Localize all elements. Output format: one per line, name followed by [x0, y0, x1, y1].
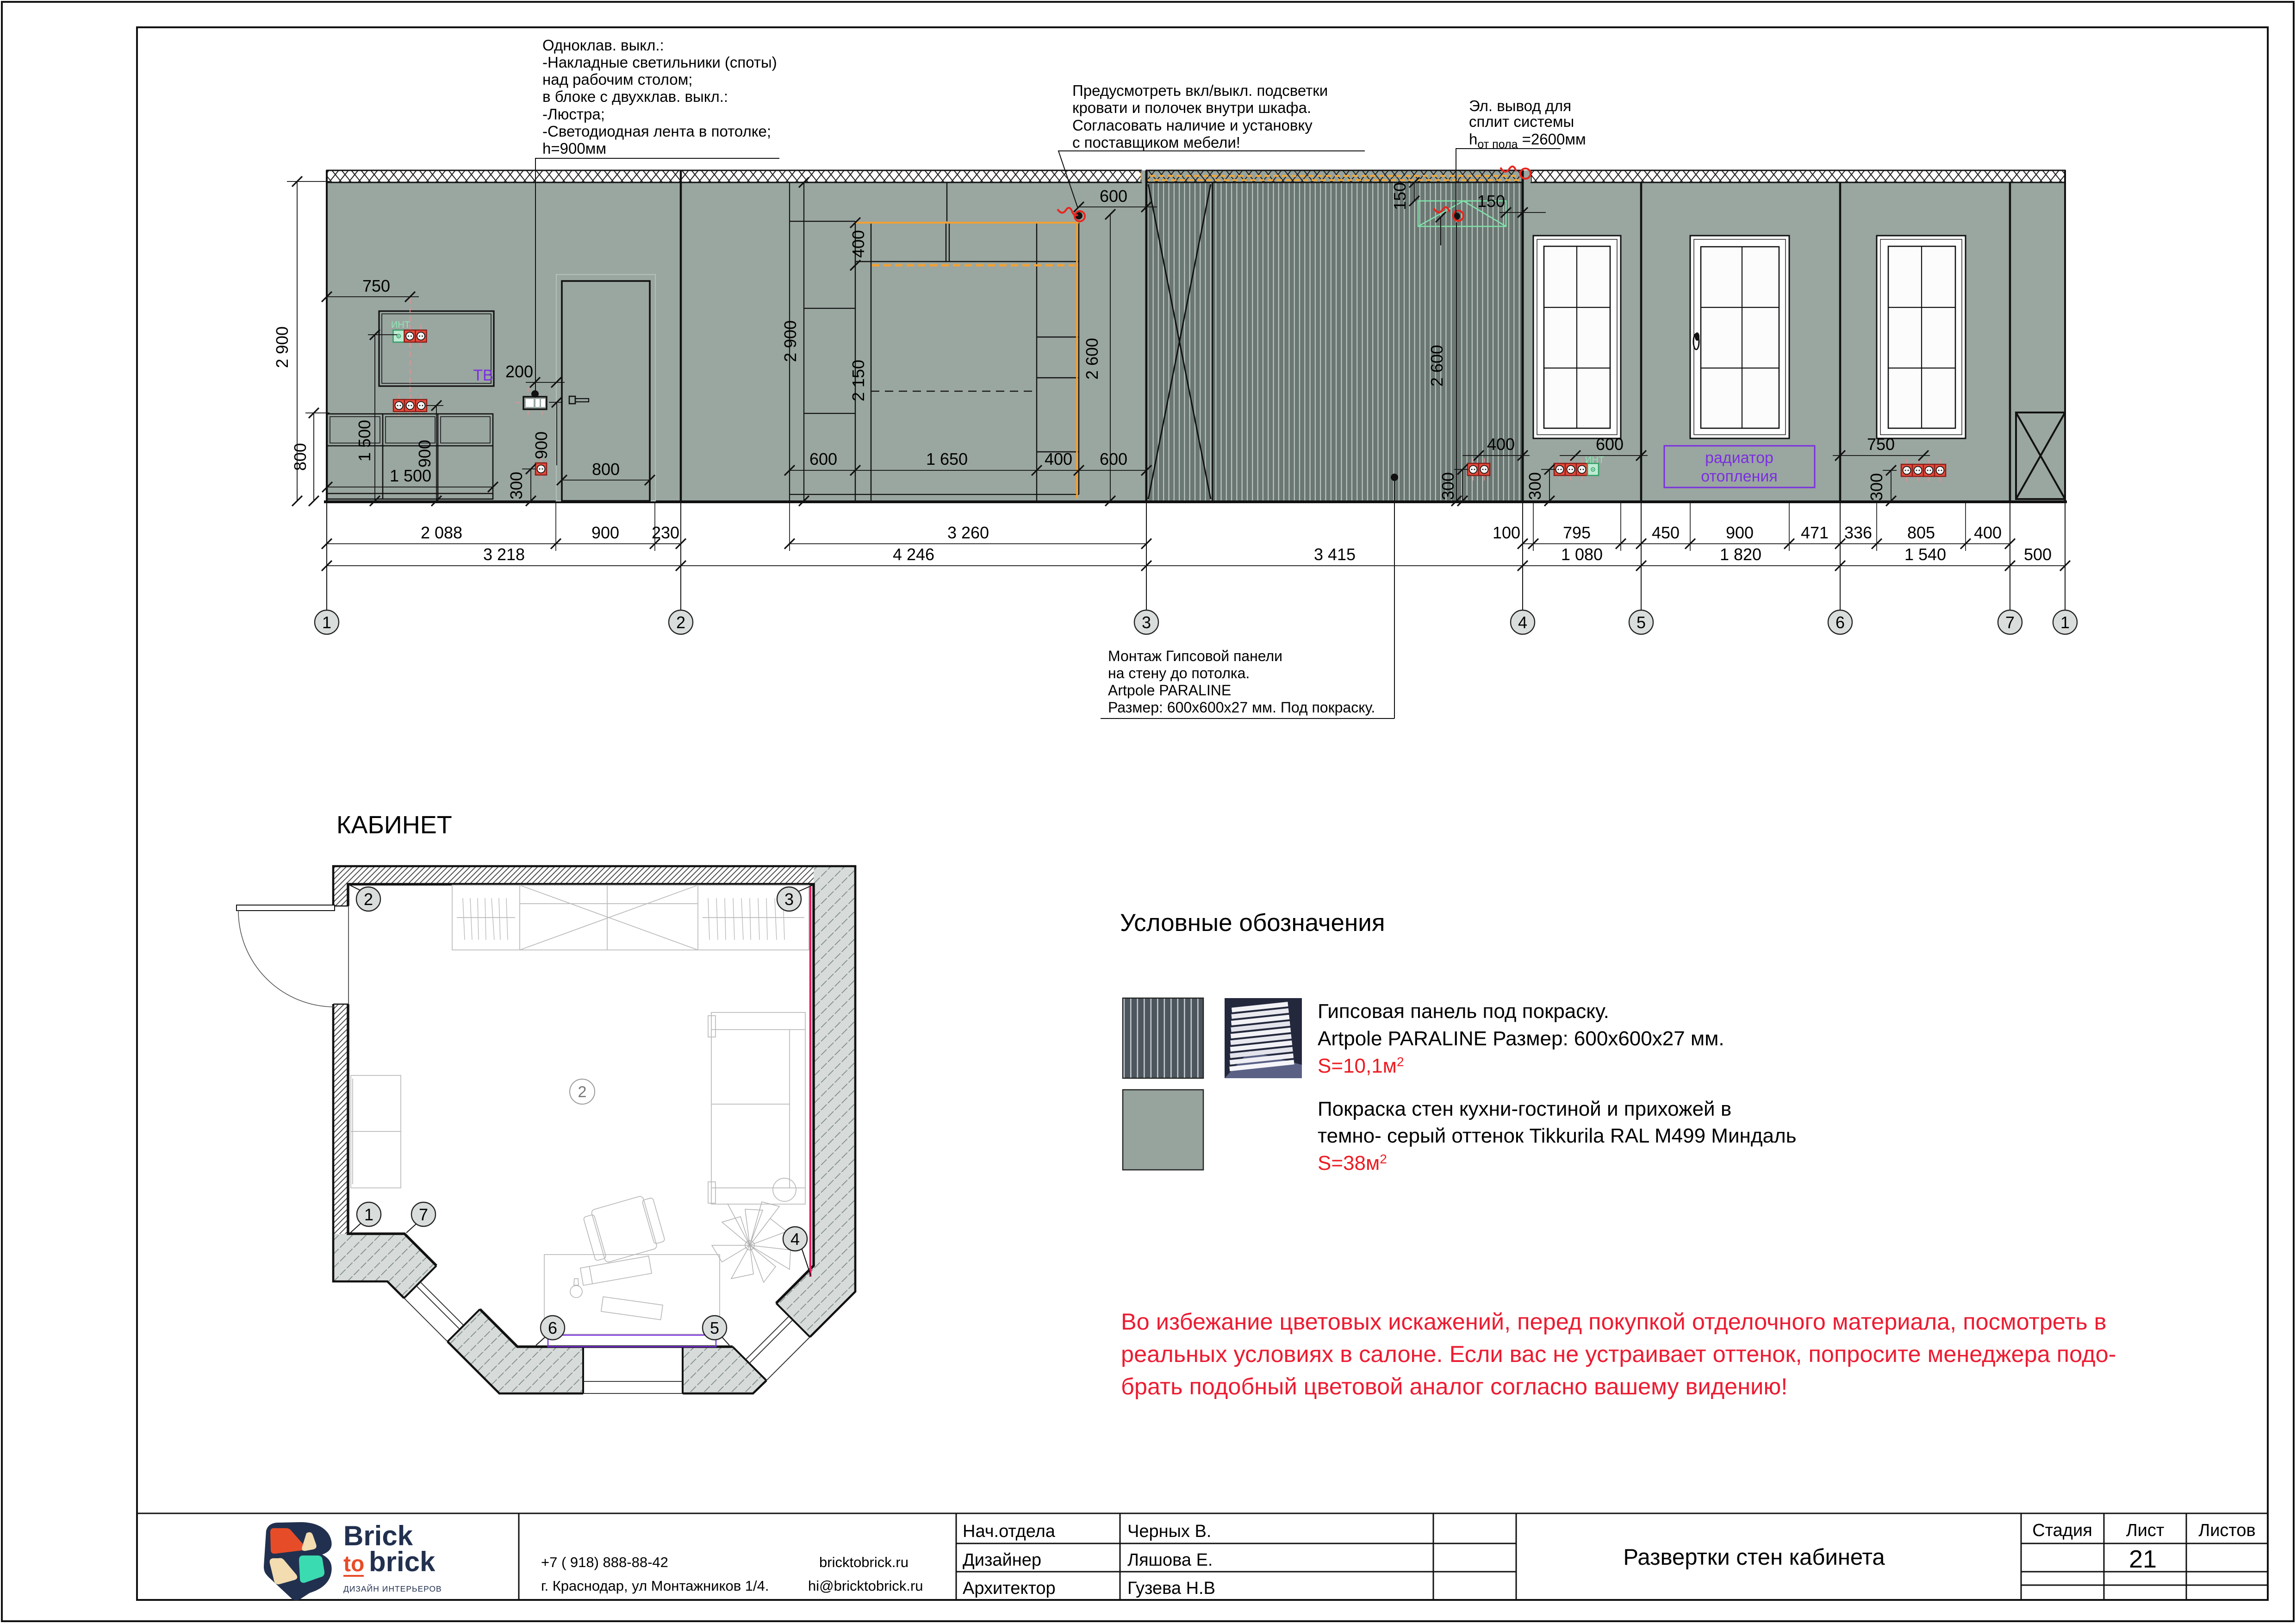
svg-text:6: 6	[548, 1318, 557, 1337]
svg-text:2: 2	[578, 1083, 587, 1101]
svg-text:400: 400	[1974, 523, 2002, 542]
svg-text:2 150: 2 150	[849, 360, 868, 401]
svg-text:336: 336	[1844, 523, 1872, 542]
svg-text:200: 200	[505, 362, 533, 381]
svg-text:3: 3	[784, 890, 794, 909]
svg-text:400: 400	[1045, 450, 1072, 468]
svg-text:3 415: 3 415	[1314, 545, 1356, 564]
svg-text:600: 600	[1100, 450, 1127, 468]
svg-text:Стадия: Стадия	[2032, 1521, 2092, 1540]
svg-text:4 246: 4 246	[893, 545, 934, 564]
svg-text:3 218: 3 218	[483, 545, 525, 564]
svg-text:1: 1	[2060, 613, 2070, 632]
svg-text:сплит системы: сплит системы	[1469, 113, 1574, 130]
svg-text:1: 1	[364, 1205, 373, 1224]
svg-text:на стену до потолка.: на стену до потолка.	[1108, 665, 1250, 681]
svg-text:ДИЗАЙН ИНТЕРЬЕРОВ: ДИЗАЙН ИНТЕРЬЕРОВ	[343, 1584, 442, 1593]
svg-text:150: 150	[1477, 192, 1505, 211]
svg-text:300: 300	[507, 472, 526, 500]
svg-text:-Люстра;: -Люстра;	[542, 106, 605, 123]
svg-text:800: 800	[592, 460, 620, 479]
svg-text:800: 800	[291, 443, 310, 471]
svg-text:2 088: 2 088	[421, 523, 462, 542]
svg-text:Условные обозначения: Условные обозначения	[1120, 909, 1385, 937]
svg-text:Нач.отдела: Нач.отдела	[963, 1522, 1056, 1541]
svg-text:400: 400	[1487, 435, 1515, 454]
svg-text:21: 21	[2129, 1545, 2157, 1573]
svg-text:471: 471	[1801, 523, 1829, 542]
svg-text:брать подобный цветовой аналог: брать подобный цветовой аналог согласно …	[1121, 1373, 1787, 1399]
svg-text:кровати и полочек внутри шкафа: кровати и полочек внутри шкафа.	[1072, 99, 1311, 116]
svg-text:300: 300	[1867, 473, 1886, 501]
svg-text:750: 750	[1867, 435, 1895, 454]
svg-text:г. Краснодар, ул Монтажников: г. Краснодар, ул Монтажников 1/4.	[541, 1578, 769, 1594]
svg-text:в блоке с двухклав. выкл.:: в блоке с двухклав. выкл.:	[542, 88, 728, 105]
svg-text:Artpole PARALINE Размер: 600х6: Artpole PARALINE Размер: 600х600х27 мм.	[1318, 1027, 1724, 1050]
svg-text:2 900: 2 900	[273, 326, 292, 368]
svg-text:-Светодиодная лента в потолке;: -Светодиодная лента в потолке;	[542, 123, 771, 140]
svg-text:Дизайнер: Дизайнер	[963, 1550, 1041, 1570]
svg-text:над рабочим столом;: над рабочим столом;	[542, 71, 692, 88]
svg-text:150: 150	[1390, 182, 1409, 210]
svg-text:900: 900	[415, 440, 434, 468]
svg-text:3 260: 3 260	[947, 523, 989, 542]
svg-text:795: 795	[1563, 523, 1591, 542]
svg-text:-Накладные светильники (споты): -Накладные светильники (споты)	[542, 54, 777, 71]
svg-text:bricktobrick.ru: bricktobrick.ru	[819, 1554, 908, 1570]
svg-text:to: to	[343, 1552, 364, 1576]
svg-text:750: 750	[362, 276, 390, 295]
svg-text:1 500: 1 500	[390, 466, 431, 485]
svg-text:2 900: 2 900	[781, 320, 800, 362]
svg-text:600: 600	[1100, 187, 1127, 206]
svg-text:hi@bricktobrick.ru: hi@bricktobrick.ru	[808, 1578, 923, 1594]
svg-text:3: 3	[1142, 613, 1151, 632]
svg-text:+7 ( 918) 888-88-42: +7 ( 918) 888-88-42	[541, 1554, 668, 1570]
svg-text:brick: brick	[369, 1546, 436, 1577]
svg-text:Гипсовая панель под покраску.: Гипсовая панель под покраску.	[1318, 1000, 1609, 1023]
svg-text:S=10,1м2: S=10,1м2	[1318, 1055, 1404, 1077]
svg-text:100: 100	[1493, 523, 1520, 542]
svg-text:805: 805	[1907, 523, 1935, 542]
svg-text:300: 300	[1525, 472, 1544, 500]
svg-text:КАБИНЕТ: КАБИНЕТ	[336, 811, 452, 839]
svg-text:реальных условиях в салоне. Ес: реальных условиях в салоне. Если вас не …	[1121, 1341, 2116, 1367]
svg-text:с поставщиком мебели!: с поставщиком мебели!	[1072, 134, 1240, 151]
svg-text:1 650: 1 650	[926, 450, 968, 468]
svg-text:2 600: 2 600	[1427, 345, 1446, 387]
svg-text:ИНТ: ИНТ	[391, 320, 410, 330]
svg-text:900: 900	[591, 523, 619, 542]
svg-text:Покраска стен кухни-гостиной и: Покраска стен кухни-гостиной и прихожей …	[1318, 1098, 1731, 1120]
svg-text:6: 6	[1836, 613, 1845, 632]
svg-text:Ляшова Е.: Ляшова Е.	[1127, 1550, 1213, 1570]
svg-text:1: 1	[322, 613, 331, 632]
svg-text:Развертки стен кабинета: Развертки стен кабинета	[1623, 1545, 1885, 1570]
svg-text:радиатор: радиатор	[1705, 449, 1773, 467]
svg-text:4: 4	[790, 1230, 800, 1249]
svg-text:600: 600	[809, 450, 837, 468]
svg-text:Во избежание цветовых искажени: Во избежание цветовых искажений, перед п…	[1121, 1308, 2107, 1335]
svg-text:Черных В.: Черных В.	[1127, 1522, 1211, 1541]
svg-text:1 500: 1 500	[355, 420, 374, 462]
svg-text:Архитектор: Архитектор	[963, 1579, 1056, 1598]
svg-text:5: 5	[710, 1318, 719, 1337]
svg-text:4: 4	[1518, 613, 1527, 632]
svg-text:Предусмотреть вкл/выкл. подсве: Предусмотреть вкл/выкл. подсветки	[1072, 82, 1328, 99]
svg-text:600: 600	[1596, 435, 1624, 454]
svg-text:2 600: 2 600	[1083, 338, 1101, 380]
svg-text:S=38м2: S=38м2	[1318, 1152, 1387, 1174]
svg-text:Гузева Н.В: Гузева Н.В	[1127, 1579, 1215, 1598]
svg-text:Artpole PARALINE: Artpole PARALINE	[1108, 682, 1231, 699]
svg-text:7: 7	[2005, 613, 2015, 632]
svg-text:2: 2	[364, 890, 373, 909]
svg-text:7: 7	[419, 1205, 428, 1224]
svg-text:1 820: 1 820	[1720, 545, 1761, 564]
svg-text:ТВ: ТВ	[473, 367, 493, 384]
svg-text:Монтаж Гипсовой панели: Монтаж Гипсовой панели	[1108, 648, 1282, 664]
svg-text:отопления: отопления	[1701, 468, 1778, 485]
svg-text:5: 5	[1636, 613, 1646, 632]
svg-text:300: 300	[1438, 472, 1457, 500]
svg-text:500: 500	[2024, 545, 2052, 564]
svg-text:Листов: Листов	[2198, 1521, 2255, 1540]
svg-text:темно- серый оттенок Tikkurila: темно- серый оттенок Tikkurila RAL M499 …	[1318, 1124, 1797, 1147]
svg-text:450: 450	[1652, 523, 1680, 542]
svg-text:900: 900	[532, 431, 551, 459]
svg-text:h=900мм: h=900мм	[542, 140, 606, 157]
svg-text:Эл. вывод для: Эл. вывод для	[1469, 97, 1571, 114]
svg-text:1 540: 1 540	[1904, 545, 1946, 564]
svg-text:230: 230	[652, 523, 679, 542]
svg-text:Согласовать наличие и установк: Согласовать наличие и установку	[1072, 117, 1313, 134]
svg-text:Одноклав. выкл.:: Одноклав. выкл.:	[542, 37, 664, 54]
svg-text:2: 2	[676, 613, 685, 632]
svg-text:400: 400	[849, 230, 868, 258]
svg-text:Лист: Лист	[2126, 1521, 2165, 1540]
svg-text:Размер: 600х600х27 мм. Под пок: Размер: 600х600х27 мм. Под покраску.	[1108, 699, 1375, 716]
svg-text:900: 900	[1726, 523, 1754, 542]
svg-text:ИНТ: ИНТ	[1585, 455, 1604, 465]
svg-text:1 080: 1 080	[1561, 545, 1603, 564]
